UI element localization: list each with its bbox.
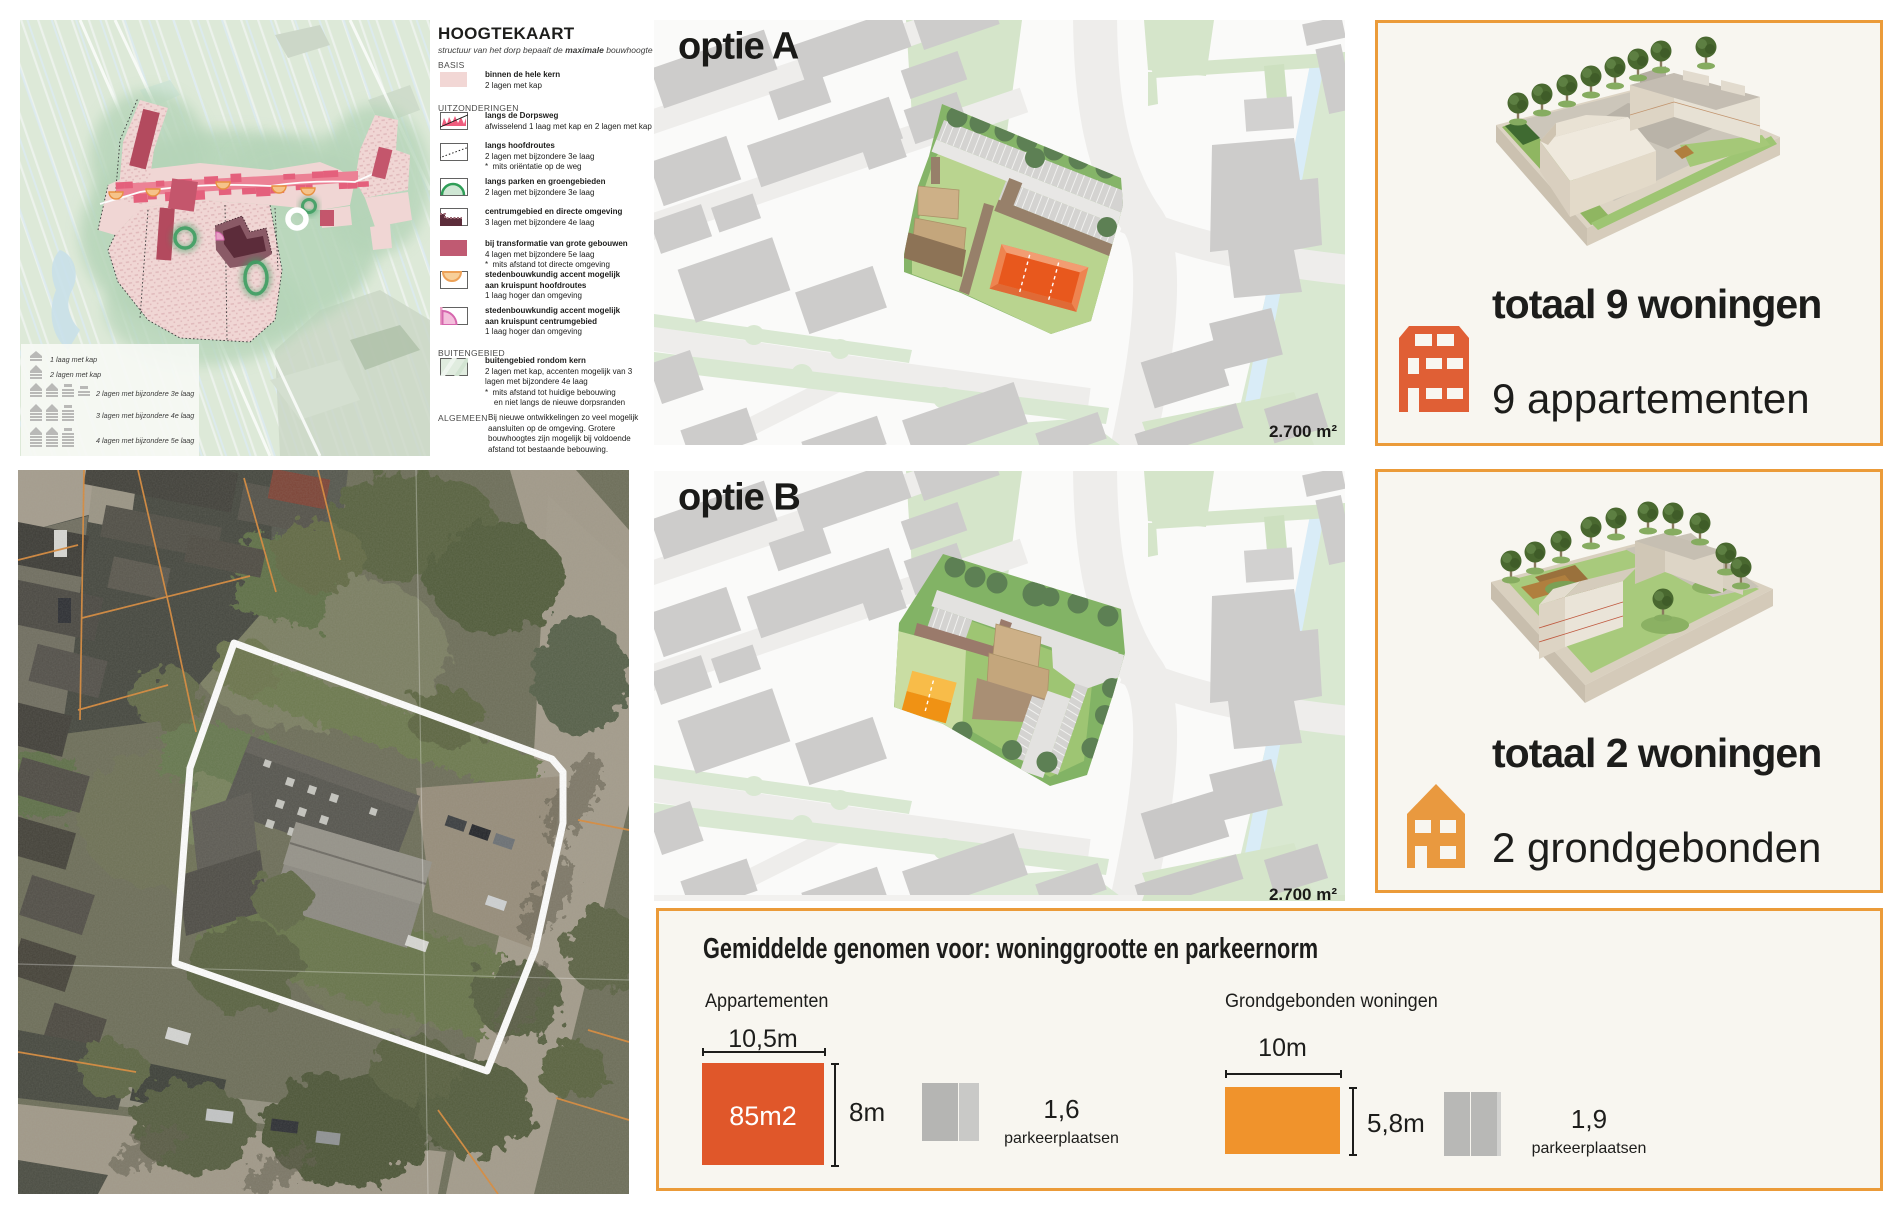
svg-text:2 lagen met bijzondere 3e laag: 2 lagen met bijzondere 3e laag (95, 389, 194, 398)
svg-text:4 lagen met bijzondere 5e laag: 4 lagen met bijzondere 5e laag (96, 436, 194, 445)
svg-text:2.700 m²: 2.700 m² (1269, 422, 1337, 441)
svg-text:2 lagen met kap: 2 lagen met kap (49, 370, 101, 379)
svg-text:optie B: optie B (678, 477, 800, 519)
svg-text:2.700 m²: 2.700 m² (1269, 885, 1337, 901)
svg-text:3 lagen met bijzondere 4e laag: 3 lagen met bijzondere 4e laag (96, 411, 194, 420)
svg-text:1 laag met kap: 1 laag met kap (50, 355, 97, 364)
svg-text:optie A: optie A (678, 26, 799, 68)
